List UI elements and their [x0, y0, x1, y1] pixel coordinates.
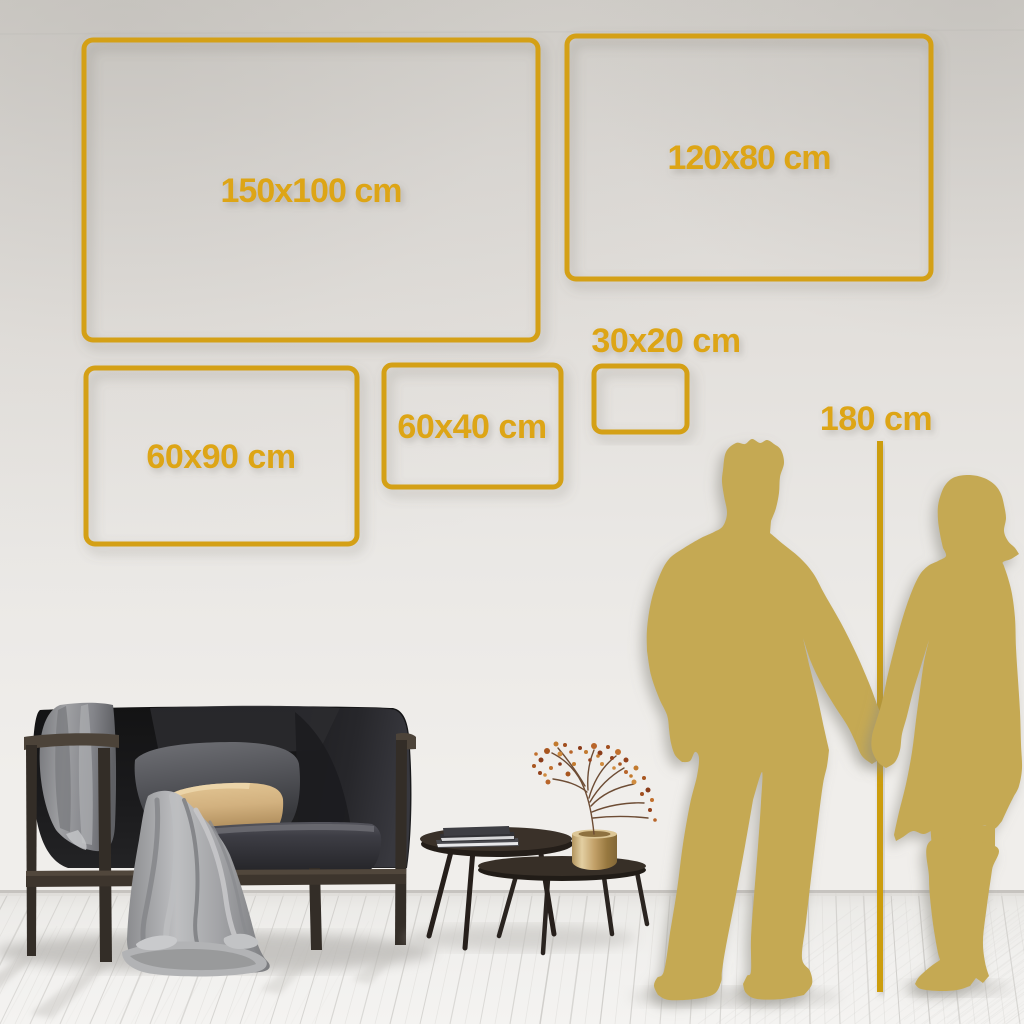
svg-text:150x100 cm: 150x100 cm — [221, 172, 402, 210]
svg-text:60x90 cm: 60x90 cm — [146, 438, 295, 476]
svg-text:180 cm: 180 cm — [820, 400, 932, 438]
svg-text:30x20 cm: 30x20 cm — [591, 322, 740, 360]
svg-text:120x80 cm: 120x80 cm — [667, 139, 830, 177]
svg-text:60x40 cm: 60x40 cm — [397, 408, 546, 446]
